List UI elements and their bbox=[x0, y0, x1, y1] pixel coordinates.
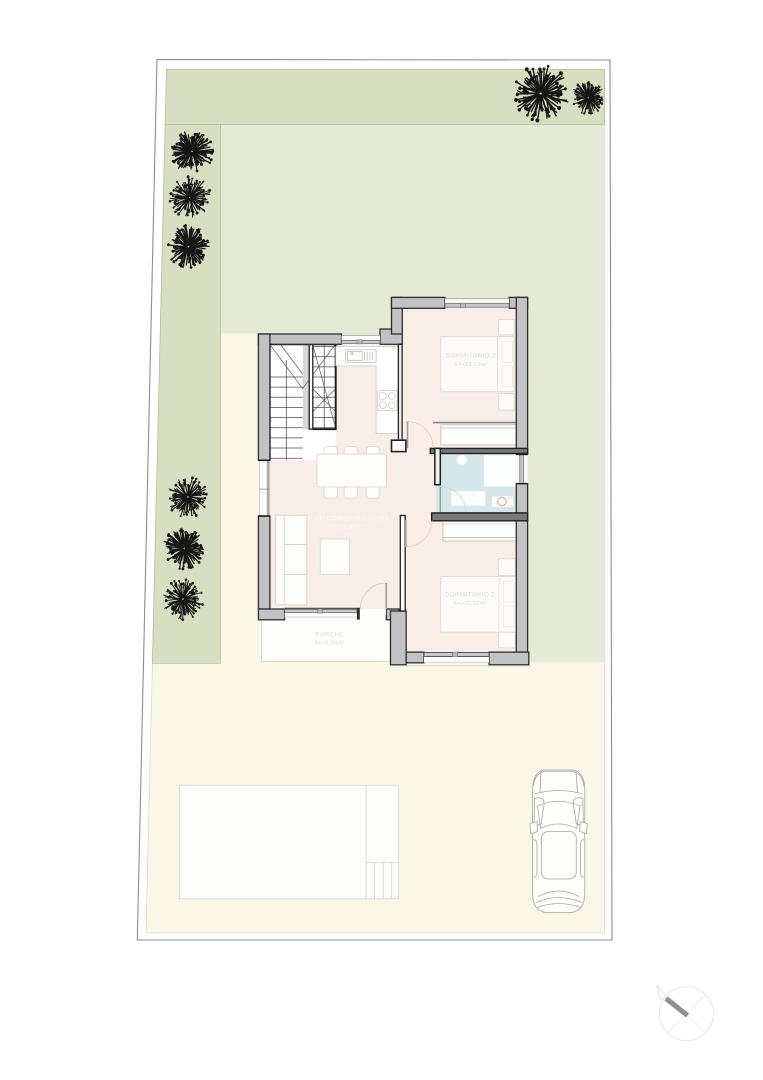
svg-text:S=+4,34m²: S=+4,34m² bbox=[314, 641, 344, 647]
svg-text:PORCHE: PORCHE bbox=[315, 633, 343, 639]
svg-text:BAÑO: BAÑO bbox=[459, 491, 474, 498]
svg-text:S=+11,52m²: S=+11,52m² bbox=[453, 601, 487, 607]
svg-text:S=+22,04m²: S=+22,04m² bbox=[328, 525, 362, 531]
svg-text:DORMITORIO 1: DORMITORIO 1 bbox=[445, 592, 495, 599]
svg-text:DORMITORIO 2: DORMITORIO 2 bbox=[446, 353, 496, 360]
svg-text:S=+3,51m²: S=+3,51m² bbox=[455, 498, 480, 503]
svg-text:SALON-COMEDOR-COCINA: SALON-COMEDOR-COCINA bbox=[302, 516, 390, 523]
svg-text:S=+12,16m²: S=+12,16m² bbox=[454, 362, 488, 368]
